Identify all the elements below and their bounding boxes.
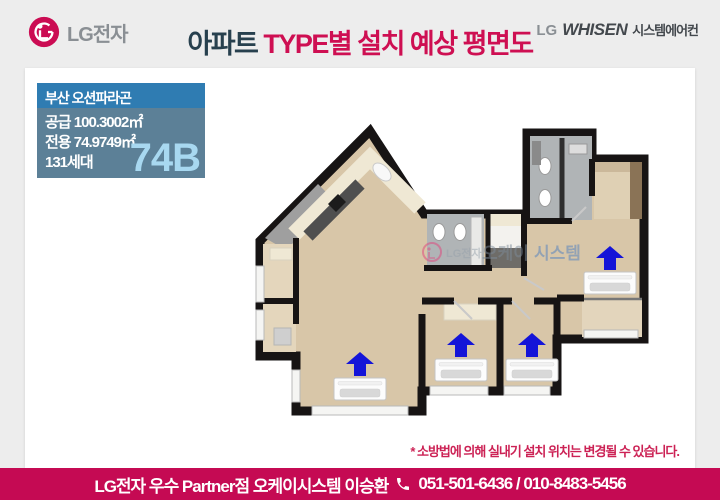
ac-indoor-unit — [435, 359, 487, 381]
entrance-shoe-closet — [490, 214, 524, 226]
whisen-brand-text: WHISEN — [562, 20, 627, 40]
window-sill — [584, 330, 638, 338]
content-panel: 부산 오션파라곤 공급 100.3002㎡ 전용 74.9749㎡ 131세대 … — [25, 68, 695, 468]
type-code: 74B — [130, 138, 200, 178]
unit-info-box: 부산 오션파라곤 공급 100.3002㎡ 전용 74.9749㎡ 131세대 … — [37, 83, 205, 178]
whisen-logo: LG WHISEN 시스템에어컨 — [536, 20, 698, 40]
watermark-system-text: 시스템 — [534, 244, 581, 263]
page-title-prefix: 아파트 — [187, 29, 263, 59]
header: LG전자 아파트 TYPE별 설치 예상 평면도 LG WHISEN 시스템에어… — [0, 0, 720, 67]
closet-strip — [630, 162, 642, 219]
toilet-icon — [539, 190, 551, 207]
footer-bar: LG전자 우수 Partner점 오케이시스템 이승환 051-501-6436… — [0, 468, 720, 500]
utility-cabinet — [270, 248, 292, 260]
phone-icon — [395, 476, 411, 492]
whisen-suffix-text: 시스템에어컨 — [632, 20, 698, 39]
unit-info-body: 공급 100.3002㎡ 전용 74.9749㎡ 131세대 74B — [37, 108, 205, 178]
supply-area: 공급 100.3002㎡ — [45, 113, 197, 133]
toilet-icon — [454, 224, 466, 241]
washer-box — [274, 328, 291, 345]
ac-indoor-unit — [334, 378, 386, 400]
floor-plan: LG전자 오케이 시스템 — [232, 86, 662, 441]
shower-glass — [532, 141, 541, 165]
floor-plan-svg: LG전자 오케이 시스템 — [232, 86, 662, 441]
complex-name: 부산 오션파라곤 — [37, 83, 205, 108]
sink-icon — [569, 144, 587, 154]
page-title-rest: TYPE별 설치 예상 평면도 — [263, 29, 532, 59]
toilet-icon — [433, 224, 445, 241]
ac-indoor-unit — [506, 359, 558, 381]
whisen-lg-text: LG — [536, 22, 557, 39]
dealer-info: LG전자 우수 Partner점 오케이시스템 이승환 — [94, 472, 388, 497]
watermark-okay-text: 오케이 — [482, 244, 529, 263]
watermark-lg-text: LG전자 — [446, 246, 482, 260]
closet-strip — [594, 162, 630, 172]
phone-numbers: 051-501-6436 / 010-8483-5456 — [418, 474, 625, 494]
disclaimer-note: * 소방법에 의해 실내기 설치 위치는 변경될 수 있습니다. — [410, 441, 679, 460]
ac-indoor-unit — [584, 272, 636, 294]
